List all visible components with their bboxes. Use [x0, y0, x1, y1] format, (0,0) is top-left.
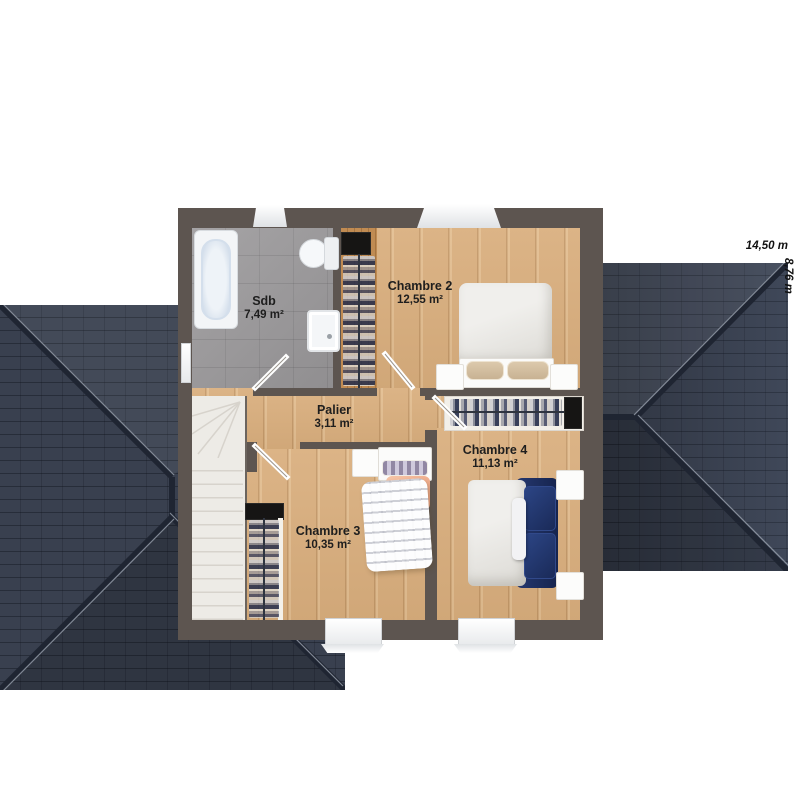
building-footprint [178, 208, 603, 640]
window-bottom-left [325, 618, 382, 646]
room-area: 11,13 m² [463, 457, 528, 471]
room-name: Chambre 2 [388, 279, 453, 293]
dimension-width-label: 14,50 m [688, 240, 788, 252]
window-bottom-right-sill [454, 644, 517, 653]
room-name: Chambre 3 [296, 524, 361, 538]
window-bottom-left-sill [321, 644, 384, 653]
window-bottom-right [458, 618, 515, 646]
roof-ridges-right [598, 263, 788, 571]
floorplan-canvas: Sdb 7,49 m² Chambre 2 12,55 m² Palier 3,… [0, 0, 800, 800]
label-chambre3: Chambre 3 10,35 m² [296, 524, 361, 552]
label-palier: Palier 3,11 m² [315, 403, 354, 431]
room-name: Palier [315, 403, 354, 417]
room-name: Chambre 4 [463, 443, 528, 457]
label-chambre4: Chambre 4 11,13 m² [463, 443, 528, 471]
door-leaves [178, 208, 603, 640]
label-sdb: Sdb 7,49 m² [244, 294, 284, 322]
room-area: 12,55 m² [388, 293, 453, 307]
roof-right-wing [598, 263, 788, 571]
room-name: Sdb [244, 294, 284, 308]
dimension-depth-label: 8,76 m [782, 258, 794, 294]
room-area: 10,35 m² [296, 538, 361, 552]
room-area: 7,49 m² [244, 308, 284, 322]
label-chambre2: Chambre 2 12,55 m² [388, 279, 453, 307]
room-area: 3,11 m² [315, 417, 354, 431]
